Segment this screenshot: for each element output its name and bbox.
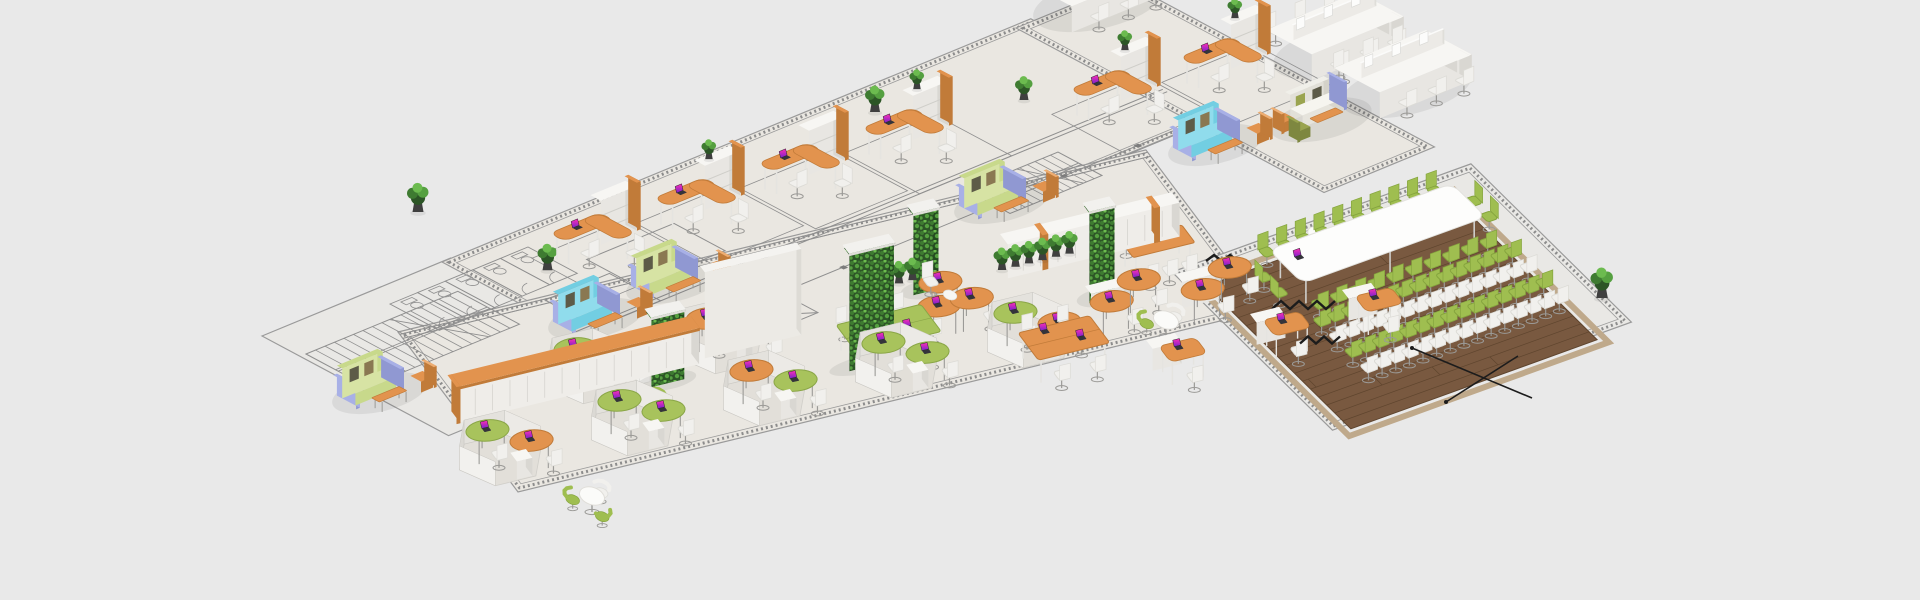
potted-plant bbox=[407, 183, 428, 216]
isometric-office-scene bbox=[0, 0, 1920, 600]
orange-desk-unit bbox=[1146, 333, 1207, 392]
office-floorplan-render bbox=[0, 0, 1920, 600]
round-meeting-table bbox=[561, 479, 613, 527]
potted-plant bbox=[407, 183, 428, 216]
